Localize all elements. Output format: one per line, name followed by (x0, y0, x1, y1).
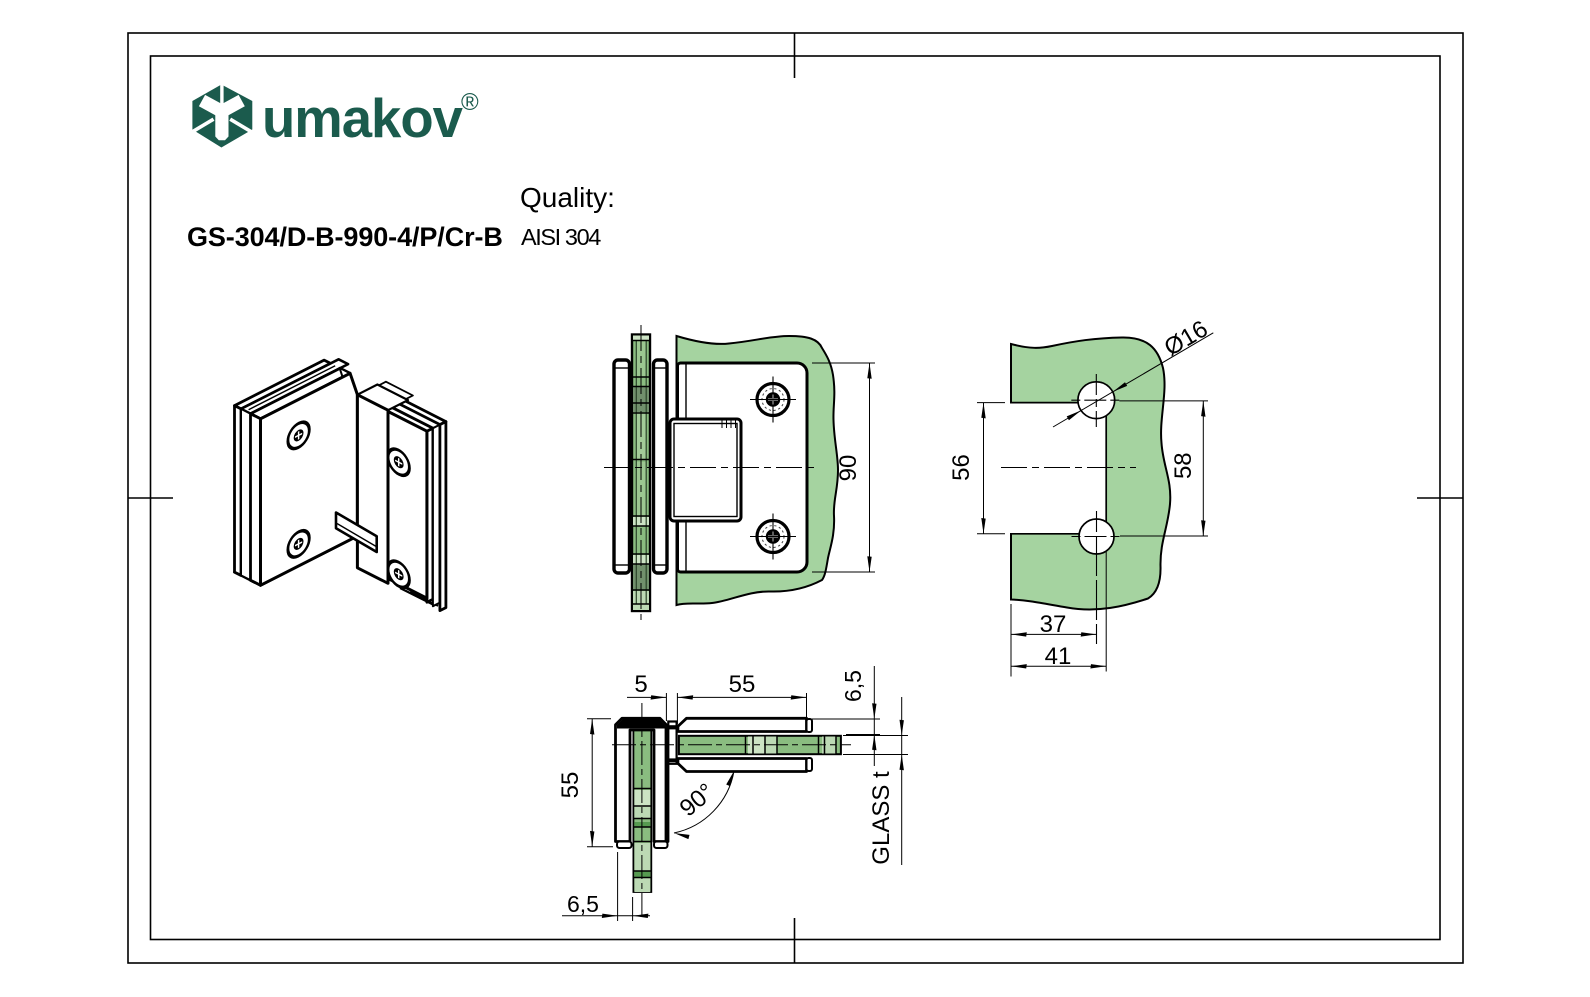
svg-text:55: 55 (729, 671, 756, 698)
svg-text:Quality:: Quality: (520, 182, 615, 213)
svg-text:AISI 304: AISI 304 (521, 224, 601, 250)
svg-text:37: 37 (1040, 611, 1067, 638)
svg-text:56: 56 (948, 454, 975, 481)
svg-text:58: 58 (1170, 452, 1197, 479)
svg-text:5: 5 (634, 671, 647, 698)
svg-text:55: 55 (557, 772, 584, 799)
svg-text:90: 90 (835, 455, 862, 482)
svg-text:®: ® (461, 89, 479, 116)
svg-text:6,5: 6,5 (840, 670, 866, 702)
svg-text:GLASS t: GLASS t (868, 771, 895, 865)
svg-text:41: 41 (1045, 643, 1072, 670)
svg-text:6,5: 6,5 (567, 891, 599, 917)
svg-text:GS-304/D-B-990-4/P/Cr-B: GS-304/D-B-990-4/P/Cr-B (187, 222, 503, 252)
svg-text:umakov: umakov (262, 88, 464, 149)
